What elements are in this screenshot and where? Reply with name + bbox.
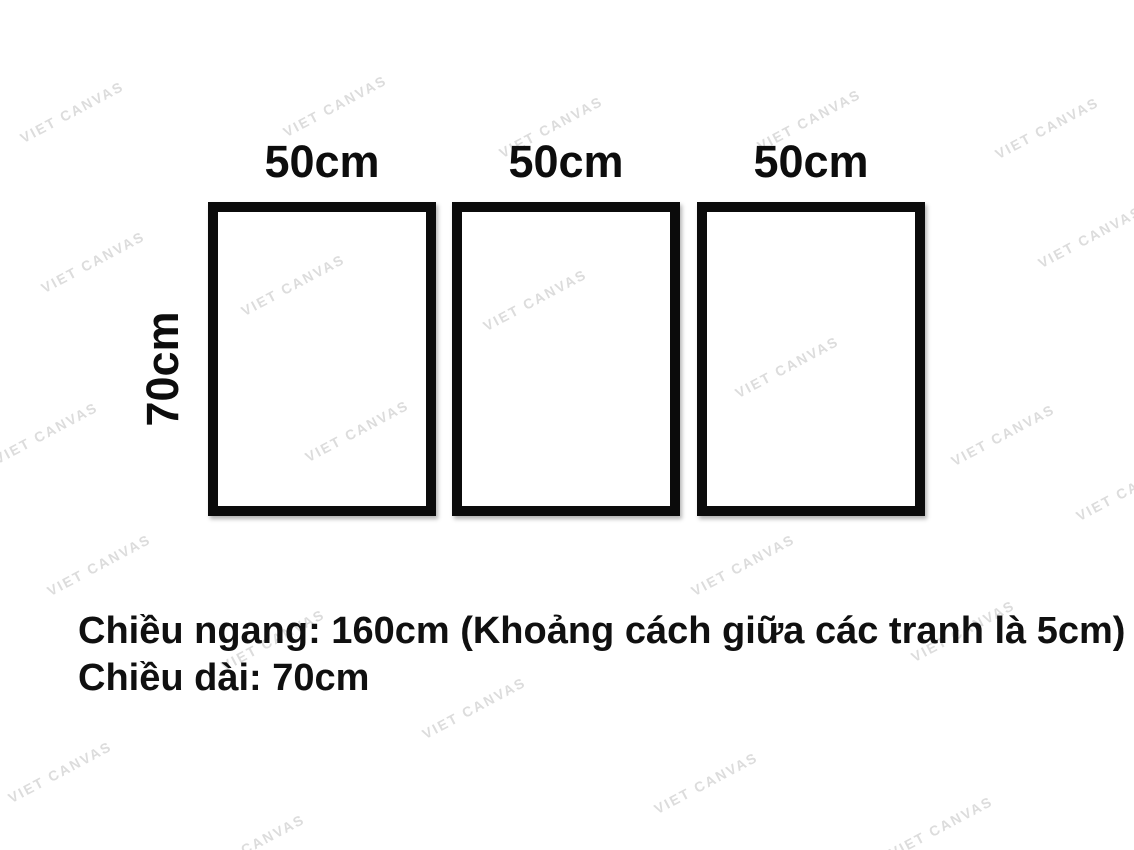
frame-height-label: 70cm [137, 311, 189, 426]
watermark-text: VIET CANVAS [992, 94, 1101, 162]
watermark-text: VIET CANVAS [0, 399, 101, 467]
watermark-text: VIET CANVAS [17, 78, 126, 146]
dimensions-note-line1: Chiều ngang: 160cm (Khoảng cách giữa các… [78, 608, 1125, 655]
frame-2 [452, 202, 680, 516]
canvas-size-diagram: VIET CANVASVIET CANVASVIET CANVASVIET CA… [0, 0, 1134, 850]
watermark-text: VIET CANVAS [5, 738, 114, 806]
watermark-text: VIET CANVAS [38, 228, 147, 296]
frame-1 [208, 202, 436, 516]
watermark-text: VIET CANVAS [198, 811, 307, 850]
frame-1-width-label: 50cm [208, 136, 436, 188]
watermark-text: VIET CANVAS [886, 793, 995, 850]
frame-2-width-label: 50cm [452, 136, 680, 188]
watermark-text: VIET CANVAS [280, 72, 389, 140]
watermark-text: VIET CANVAS [1035, 203, 1134, 271]
watermark-text: VIET CANVAS [1073, 456, 1134, 524]
dimensions-note-line2: Chiều dài: 70cm [78, 655, 1125, 702]
watermark-text: VIET CANVAS [651, 749, 760, 817]
watermark-text: VIET CANVAS [688, 531, 797, 599]
frame-3 [697, 202, 925, 516]
watermark-text: VIET CANVAS [948, 401, 1057, 469]
watermark-text: VIET CANVAS [44, 531, 153, 599]
frame-3-width-label: 50cm [697, 136, 925, 188]
dimensions-note: Chiều ngang: 160cm (Khoảng cách giữa các… [78, 608, 1125, 702]
